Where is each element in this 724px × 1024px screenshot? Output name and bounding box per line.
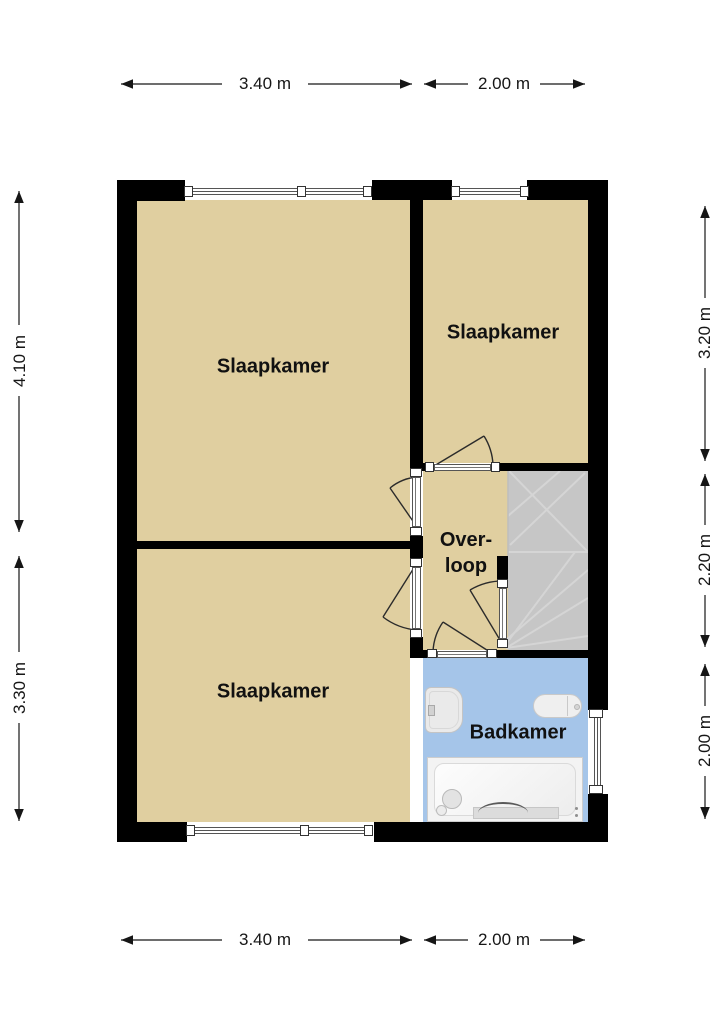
wall-stair-stub: [497, 556, 508, 581]
wall-right-lower: [588, 794, 608, 822]
window-jamb: [186, 825, 195, 836]
wall-center-vertical-mid: [410, 536, 423, 558]
wall-between-left-bedrooms: [137, 541, 410, 549]
toilet-icon: [533, 694, 582, 718]
wall-left: [117, 180, 137, 842]
wall-center-vertical-upper: [410, 200, 423, 469]
dimension-top-2: 2.00 m: [474, 74, 534, 94]
window-jamb: [184, 186, 193, 197]
dimension-right-2: 2.20 m: [695, 530, 715, 590]
wall-right-upper: [588, 200, 608, 710]
dimension-right-1: 3.20 m: [695, 303, 715, 363]
room-label-slaapkamer-bottom-left: Slaapkamer: [217, 681, 329, 704]
wall-top-right-pier: [527, 180, 608, 200]
wall-badkamer-top-b: [497, 650, 608, 658]
stairwell: [508, 471, 588, 650]
room-label-overloop: Over- loop: [440, 527, 492, 579]
window-jamb: [363, 186, 372, 197]
window-top-2: [456, 188, 523, 195]
door-opening-top-left-bedroom: [412, 477, 421, 527]
window-jamb: [297, 186, 306, 197]
door-jamb: [497, 579, 508, 588]
window-jamb: [589, 785, 603, 794]
door-jamb: [487, 649, 497, 658]
shower-knob-icon: [436, 805, 447, 816]
door-jamb: [410, 468, 422, 477]
floor-plan: Slaapkamer Slaapkamer Slaapkamer Over- l…: [0, 0, 724, 1024]
wall-bottom-right: [374, 822, 608, 842]
door-jamb: [427, 649, 437, 658]
toilet-cistern-divider: [567, 696, 568, 716]
window-jamb: [520, 186, 529, 197]
wall-bottom-left-pier: [117, 822, 187, 842]
window-jamb: [364, 825, 373, 836]
room-label-slaapkamer-top-right: Slaapkamer: [447, 322, 559, 345]
window-jamb: [300, 825, 309, 836]
washbasin-icon: [425, 687, 463, 733]
bathtub-icon: [427, 757, 583, 822]
door-opening-top-right-bedroom: [434, 464, 491, 471]
room-label-overloop-line2: loop: [440, 553, 492, 579]
washbasin-tap-icon: [428, 705, 435, 716]
door-jamb: [410, 629, 422, 638]
door-jamb: [425, 462, 434, 472]
window-jamb: [451, 186, 460, 197]
window-jamb: [589, 709, 603, 718]
wall-overloop-top-b: [500, 463, 608, 471]
room-label-overloop-line1: Over-: [440, 527, 492, 553]
wall-top-mid-pier: [372, 180, 452, 200]
door-opening-stairs: [499, 588, 507, 639]
toilet-flush-button-icon: [574, 704, 580, 710]
window-badkamer: [594, 716, 601, 788]
window-top-1: [191, 188, 366, 195]
door-jamb: [497, 639, 508, 648]
room-label-badkamer: Badkamer: [470, 722, 567, 745]
bath-drain-icon: [575, 814, 578, 817]
dimension-left-1: 4.10 m: [10, 331, 30, 391]
bath-drain-icon: [575, 807, 578, 810]
door-opening-badkamer: [437, 651, 487, 658]
room-label-slaapkamer-top-left: Slaapkamer: [217, 356, 329, 379]
dimension-bottom-1: 3.40 m: [235, 930, 295, 950]
dimension-left-2: 3.30 m: [10, 658, 30, 718]
door-jamb: [410, 558, 422, 567]
window-bottom: [192, 827, 367, 834]
wall-badkamer-top-a: [410, 650, 427, 658]
dimension-right-3: 2.00 m: [695, 711, 715, 771]
door-jamb: [491, 462, 500, 472]
dimension-top-1: 3.40 m: [235, 74, 295, 94]
dimension-bottom-2: 2.00 m: [474, 930, 534, 950]
door-jamb: [410, 527, 422, 536]
door-opening-bottom-left-bedroom: [412, 567, 421, 629]
